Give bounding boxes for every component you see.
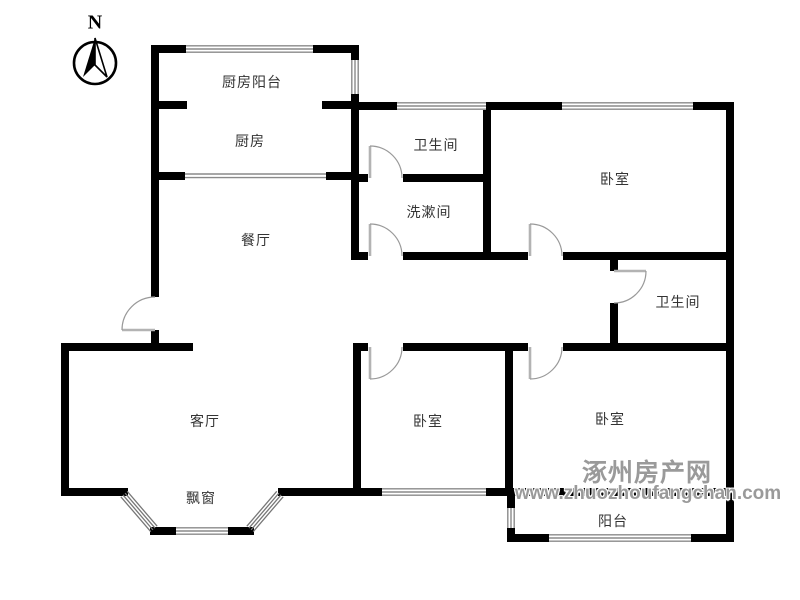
door-bathroom-top (370, 146, 402, 178)
window-kitchen-balcony-top (186, 45, 313, 53)
window-balcony-left (507, 508, 515, 528)
window-bathroom-top (397, 102, 486, 110)
compass-north-label: N (88, 12, 102, 35)
door-bedroom-northeast (530, 224, 562, 256)
watermark-site-url: www.zhuozhoufangchan.com (515, 483, 781, 505)
sliding-door-kitchen (185, 173, 326, 180)
room-label-washroom: 洗漱间 (407, 202, 452, 222)
room-label-bathroom-east: 卫生间 (656, 292, 701, 312)
room-label-bedroom-northeast: 卧室 (600, 169, 630, 189)
room-label-kitchen: 厨房 (235, 131, 265, 151)
window-bedroom-northeast (562, 102, 693, 110)
door-washroom (370, 224, 402, 256)
room-label-bedroom-south: 卧室 (413, 411, 443, 431)
window-bay-bottom (176, 527, 228, 535)
room-label-balcony: 阳台 (598, 511, 628, 531)
compass-icon (74, 38, 116, 84)
room-label-bay-window: 飘窗 (186, 488, 216, 508)
window-bay-diagonal-left (121, 491, 157, 531)
door-bathroom-east (614, 271, 646, 303)
room-label-dining: 餐厅 (241, 230, 271, 250)
door-bedroom-south (370, 347, 402, 379)
room-label-kitchen-balcony: 厨房阳台 (222, 72, 282, 92)
room-label-bathroom-top: 卫生间 (414, 135, 459, 155)
door-entry (122, 297, 155, 330)
room-label-living-room: 客厅 (190, 411, 220, 431)
window-bedroom-south (382, 488, 486, 496)
window-balcony-bottom (549, 534, 691, 542)
door-bedroom-southeast (530, 347, 562, 379)
window-bay-diagonal-right (247, 491, 283, 531)
window-kitchen-balcony-right (351, 60, 359, 94)
floor-plan: N 厨房阳台 厨房 卫生间 洗漱间 餐厅 卧室 卫生间 客厅 卧室 卧室 飘窗 … (0, 0, 800, 600)
room-label-bedroom-southeast: 卧室 (595, 409, 625, 429)
